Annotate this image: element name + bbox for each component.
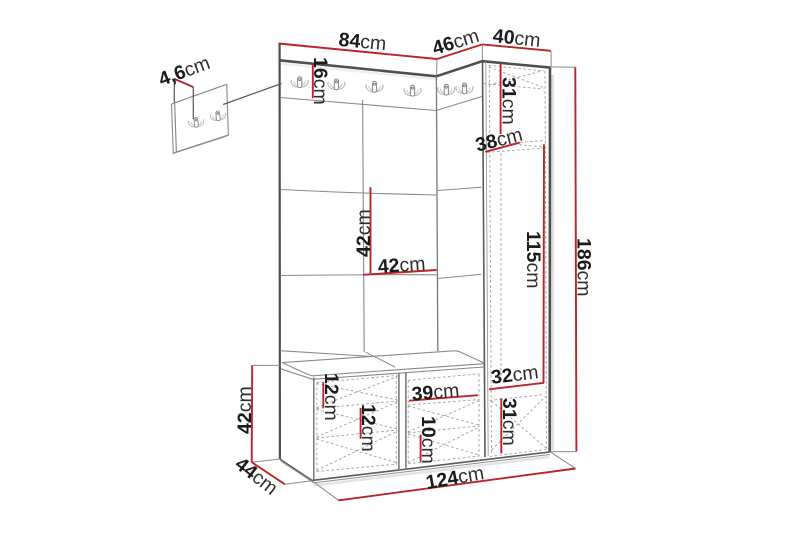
svg-text:42cm: 42cm — [234, 386, 256, 434]
svg-text:115cm: 115cm — [522, 231, 544, 288]
svg-text:12cm: 12cm — [320, 373, 342, 421]
svg-text:16cm: 16cm — [309, 57, 331, 105]
svg-text:10cm: 10cm — [417, 416, 439, 464]
svg-text:12cm: 12cm — [357, 404, 379, 452]
svg-text:39cm: 39cm — [411, 379, 460, 405]
svg-text:186cm: 186cm — [573, 238, 595, 297]
svg-text:31cm: 31cm — [498, 398, 520, 446]
svg-text:42cm: 42cm — [353, 209, 375, 257]
svg-text:42cm: 42cm — [377, 253, 426, 278]
svg-text:31cm: 31cm — [497, 77, 519, 125]
svg-text:84cm: 84cm — [338, 29, 388, 55]
